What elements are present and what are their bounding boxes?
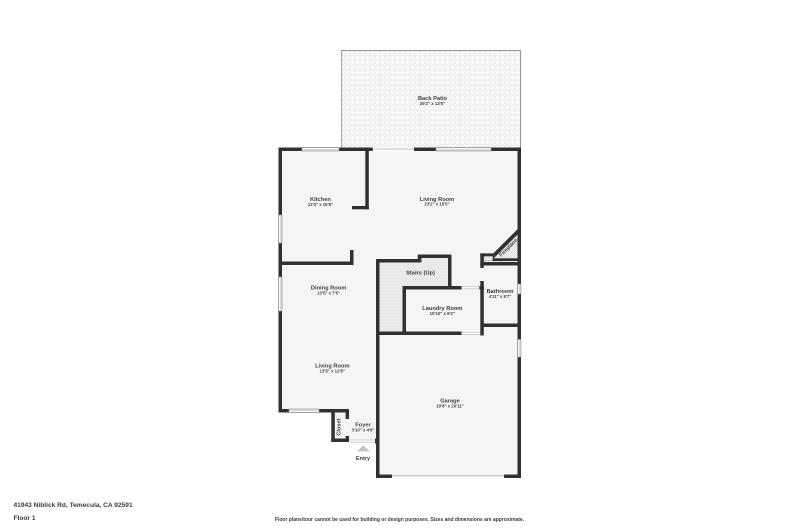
svg-text:4'11" x 8'7": 4'11" x 8'7"	[489, 294, 512, 299]
svg-text:13'5" x 7'5": 13'5" x 7'5"	[317, 290, 340, 295]
svg-text:3'10" x 4'9": 3'10" x 4'9"	[352, 428, 375, 433]
svg-text:10'10" x 6'2": 10'10" x 6'2"	[430, 311, 455, 316]
svg-text:12'0" x 15'8": 12'0" x 15'8"	[308, 202, 333, 207]
svg-text:Stairs (Up): Stairs (Up)	[406, 270, 435, 276]
svg-text:Floor plans/tour cannot be use: Floor plans/tour cannot be used for buil…	[275, 517, 525, 523]
svg-text:Entry: Entry	[356, 456, 371, 462]
svg-text:Floor 1: Floor 1	[14, 515, 36, 522]
svg-text:13'5" x 12'8": 13'5" x 12'8"	[320, 368, 345, 373]
svg-text:19'8" x 20'11": 19'8" x 20'11"	[436, 403, 463, 408]
svg-text:41943 Niblick Rd, Temecula, CA: 41943 Niblick Rd, Temecula, CA 92591	[14, 502, 133, 509]
svg-text:25'2" x 13'5": 25'2" x 13'5"	[420, 101, 445, 106]
svg-text:Closet: Closet	[337, 418, 343, 435]
svg-text:23'2" x 15'5": 23'2" x 15'5"	[424, 202, 449, 207]
